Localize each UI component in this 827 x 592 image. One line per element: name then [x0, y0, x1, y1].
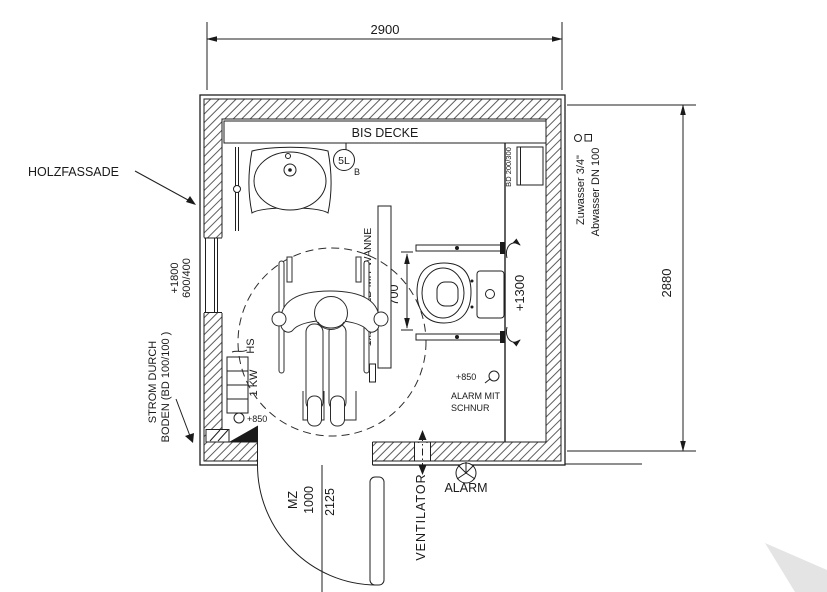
- radiator: 1 KW HS +850: [227, 338, 267, 424]
- door: MZ 1000 2125: [258, 465, 385, 592]
- supply-pipe-label: Zuwasser 3/4": [575, 155, 587, 225]
- push-handle-right: [356, 257, 361, 282]
- cistern-level-label: +1300: [512, 275, 527, 312]
- floor-plan-drawing: BIS DECKE 2900 2880 700 HOLZFASSADE +180…: [0, 0, 827, 592]
- sink-bowl: [254, 152, 326, 210]
- hand-left: [272, 312, 286, 326]
- alarm-cord: +850 ALARM MIT SCHNUR: [451, 371, 501, 413]
- hand-right: [374, 312, 388, 326]
- ceiling-band: BIS DECKE: [224, 121, 546, 143]
- alarm-bell: ALARM: [444, 462, 487, 495]
- push-handle-left: [287, 257, 292, 282]
- faucet-dot: [286, 154, 291, 159]
- facade-label: HOLZFASSADE: [28, 165, 119, 179]
- waste-pipe-label: Abwasser DN 100: [590, 148, 602, 237]
- door-swing-arc: [258, 465, 378, 585]
- boiler-volume-label: 5L: [338, 155, 350, 167]
- fold-arrow-bottom: [506, 327, 520, 342]
- dim-height-value: 2880: [659, 269, 674, 298]
- door-leaf: [370, 477, 384, 585]
- floor-power-label-2: BODEN (BD 100/100 ): [160, 332, 172, 443]
- door-width-label: 1000: [302, 486, 316, 514]
- supply-pipe-symbol: [575, 135, 582, 142]
- alarm-cord-label-2: SCHNUR: [451, 403, 490, 413]
- pipe-labels: Zuwasser 3/4" Abwasser DN 100: [575, 135, 603, 237]
- grab-rail-knob: [234, 186, 241, 193]
- alarm-level-label: +850: [456, 372, 476, 382]
- alarm-label: ALARM: [444, 481, 487, 495]
- page-corner-watermark: [765, 543, 827, 592]
- sink: [234, 147, 332, 231]
- window-opening: [204, 238, 223, 314]
- ramp-wedge: [229, 426, 258, 443]
- toilet-opening: [437, 282, 458, 306]
- dim-width-value: 2900: [371, 22, 400, 37]
- window-size-label: 600/400: [181, 258, 193, 298]
- flush-button: [486, 290, 495, 299]
- socket-symbol: [234, 413, 244, 423]
- floor-plan-page: BIS DECKE 2900 2880 700 HOLZFASSADE +180…: [0, 0, 827, 592]
- floor-power-label-1: STROM DURCH: [147, 341, 159, 424]
- foot-right: [331, 396, 345, 426]
- dimension-2900: 2900: [207, 22, 562, 90]
- fold-arrow-top: [506, 243, 520, 258]
- duct-box: BD 200/300: [504, 147, 543, 187]
- door-type-label: MZ: [286, 491, 300, 509]
- door-height-label: 2125: [323, 488, 337, 516]
- radiator-power-label: 1 KW: [248, 369, 260, 397]
- door-opening: [258, 441, 373, 467]
- floor-power-callout: STROM DURCH BODEN (BD 100/100 ): [147, 332, 194, 443]
- ventilator-label: VENTILATOR: [414, 473, 428, 560]
- facade-callout: HOLZFASSADE: [28, 165, 196, 205]
- waste-pipe-symbol: [585, 135, 592, 142]
- boiler-symbol: 5L B: [334, 143, 361, 177]
- window-labels: +1800 600/400: [169, 258, 193, 298]
- duct-label: BD 200/300: [504, 147, 513, 187]
- boiler-mark-label: B: [354, 167, 360, 177]
- window-level-label: +1800: [169, 263, 181, 294]
- ceiling-band-label: BIS DECKE: [352, 126, 419, 140]
- foot-left: [308, 396, 322, 426]
- socket-level-label: +850: [247, 414, 267, 424]
- alarm-cord-label-1: ALARM MIT: [451, 391, 501, 401]
- switch-label: HS: [245, 338, 257, 353]
